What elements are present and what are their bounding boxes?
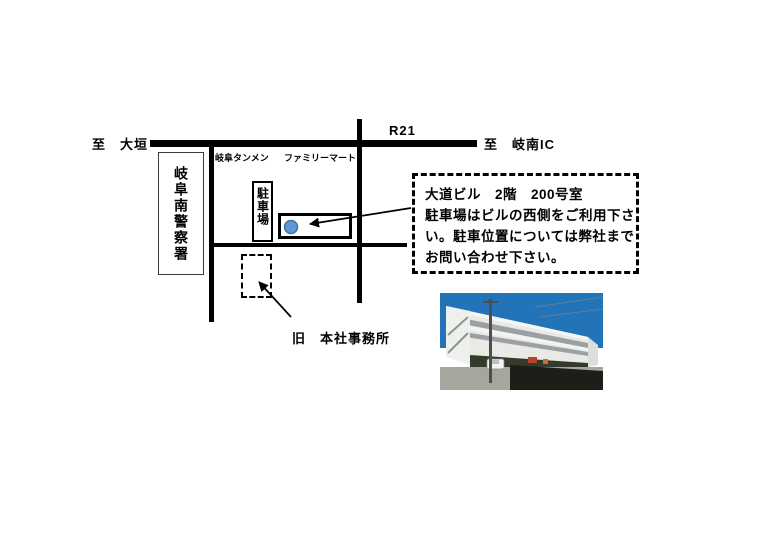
parking-lot-label: 駐車場 xyxy=(257,187,269,226)
daido-building-box xyxy=(278,213,352,239)
info-line-4: お問い合わせ下さい。 xyxy=(425,247,632,268)
building-photo xyxy=(440,293,603,390)
photo-red-sign xyxy=(528,357,537,363)
info-line-2: 駐車場はビルの西側をご利用下さ xyxy=(425,205,632,226)
label-route-r21: R21 xyxy=(389,123,416,138)
info-line-1: 大道ビル 2階 200号室 xyxy=(425,184,632,205)
info-line-3: い。駐車位置については弊社まで xyxy=(425,226,632,247)
road-vertical-east xyxy=(357,119,362,303)
label-to-ogaki: 至 大垣 xyxy=(92,134,148,153)
label-to-ginan: 至 岐南IC xyxy=(484,134,555,153)
road-vertical-west xyxy=(209,147,214,322)
police-station-label: 岐阜南警察署 xyxy=(174,166,188,262)
arrows-overlay xyxy=(0,0,780,550)
label-gifu-tanmen: 岐阜タンメン xyxy=(215,151,269,164)
label-familymart: ファミリーマート xyxy=(284,151,356,164)
police-station-box: 岐阜南警察署 xyxy=(158,152,204,275)
photo-pole-crossarm xyxy=(483,301,498,303)
access-map-page: 至 大垣 R21 至 岐南IC 岐阜タンメン ファミリーマート 岐阜南警察署 駐… xyxy=(0,0,780,550)
label-old-office: 旧 本社事務所 xyxy=(292,328,390,347)
old-office-dashed-box xyxy=(241,254,272,298)
road-horizontal-south xyxy=(211,243,407,247)
photo-orange-sign xyxy=(543,359,548,364)
road-r21 xyxy=(150,140,477,147)
info-box: 大道ビル 2階 200号室 駐車場はビルの西側をご利用下さ い。駐車位置について… xyxy=(412,173,639,274)
parking-lot-box: 駐車場 xyxy=(252,181,273,242)
photo-utility-pole xyxy=(489,299,492,383)
